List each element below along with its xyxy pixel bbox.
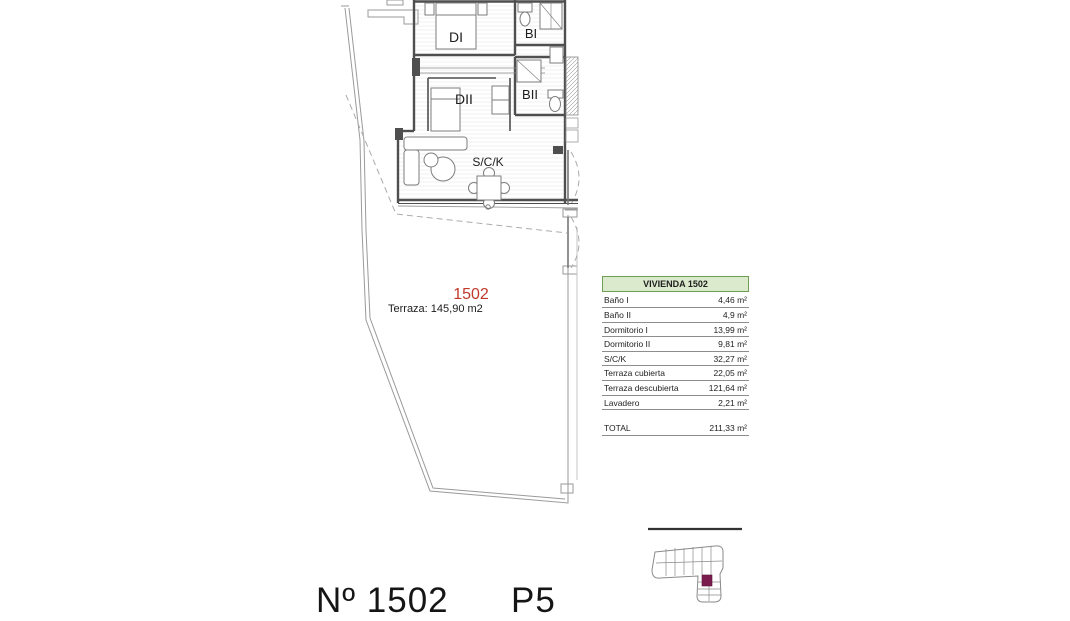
row-label: Terraza cubierta (604, 368, 665, 379)
floorplan-sheet: { "plan": { "unit_number": "1502", "terr… (0, 0, 1070, 620)
table-row: Terraza descubierta 121,64 m² (602, 381, 749, 396)
table-row: Dormitorio I 13,99 m² (602, 323, 749, 338)
room-label-sck: S/C/K (472, 155, 503, 169)
nightstand (478, 3, 487, 15)
table-row: S/C/K 32,27 m² (602, 352, 749, 367)
row-label: Lavadero (604, 398, 639, 409)
lavadero-hatch (566, 57, 578, 115)
row-label: Dormitorio I (604, 325, 648, 336)
row-label: Dormitorio II (604, 339, 650, 350)
table-row: Dormitorio II 9,81 m² (602, 337, 749, 352)
row-label: Baño II (604, 310, 631, 321)
toilet-bi (518, 3, 532, 12)
row-value: 4,9 m² (723, 310, 747, 321)
table-row: Baño II 4,9 m² (602, 308, 749, 323)
row-value: 13,99 m² (713, 325, 747, 336)
key-plan-highlight-unit (702, 575, 712, 586)
row-value: 9,81 m² (718, 339, 747, 350)
row-label: Terraza descubierta (604, 383, 679, 394)
row-value: 4,46 m² (718, 295, 747, 306)
area-table-rows: Baño I 4,46 m² Baño II 4,9 m² Dormitorio… (602, 293, 749, 410)
total-value: 211,33 m² (709, 423, 747, 434)
room-label-bii: BII (522, 87, 538, 102)
area-table-header: VIVIENDA 1502 (602, 276, 749, 292)
table-row: Baño I 4,46 m² (602, 293, 749, 308)
table-row: Lavadero 2,21 m² (602, 396, 749, 411)
row-label: S/C/K (604, 354, 626, 365)
row-value: 121,64 m² (709, 383, 747, 394)
row-value: 32,27 m² (713, 354, 747, 365)
terrace-area-label: Terraza: 145,90 m2 (388, 303, 483, 315)
facade-ledge (368, 0, 418, 24)
dining-table (477, 176, 501, 200)
key-plan-building-outline (652, 546, 723, 602)
nightstand (425, 3, 434, 15)
sheet-floor-number: P5 (511, 581, 556, 621)
room-label-dii: DII (455, 91, 473, 107)
row-value: 2,21 m² (718, 398, 747, 409)
table-row: Terraza cubierta 22,05 m² (602, 366, 749, 381)
row-label: Baño I (604, 295, 629, 306)
sofa (404, 137, 467, 150)
area-table: VIVIENDA 1502 Baño I 4,46 m² Baño II 4,9… (602, 276, 749, 436)
sink (550, 47, 563, 63)
sheet-unit-number: Nº 1502 (316, 581, 449, 621)
terrace-unit-number: 1502 (453, 286, 489, 303)
room-label-bi: BI (525, 26, 537, 41)
total-label: TOTAL (604, 423, 631, 434)
floor-plan-drawing: DI BI DII BII S/C/K 1502 Terraza: 145,90… (0, 0, 1070, 620)
table-total-row: TOTAL 211,33 m² (602, 421, 749, 436)
floor-hatch (398, 0, 565, 199)
room-label-di: DI (449, 29, 463, 45)
key-plan (648, 529, 742, 602)
row-value: 22,05 m² (713, 368, 747, 379)
